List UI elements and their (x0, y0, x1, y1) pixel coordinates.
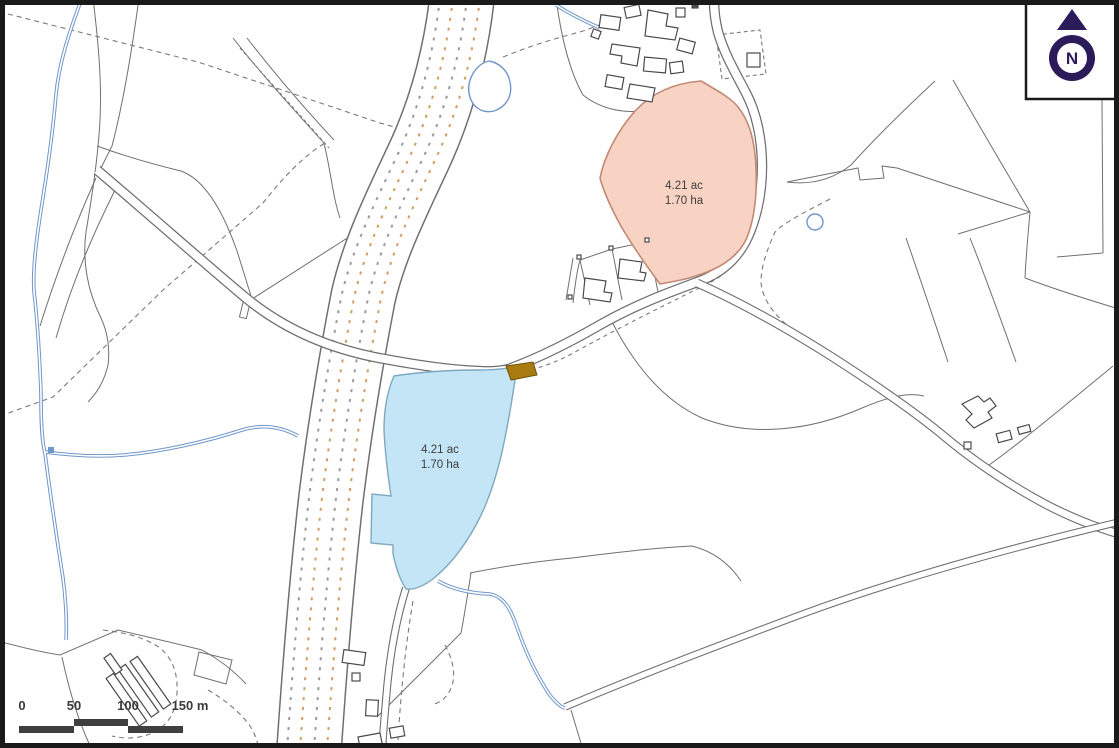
blue-parcel-area-ha: 1.70 ha (421, 459, 460, 471)
roads (97, 0, 1119, 748)
map-canvas: 4.21 ac 1.70 ha 4.21 ac 1.70 ha 0 50 100… (0, 0, 1119, 748)
pink-parcel-area-ac: 4.21 ac (665, 180, 703, 192)
field-boundaries (0, 0, 1119, 748)
buildings (104, 2, 1031, 748)
parcel-blue (371, 367, 515, 589)
pink-parcel-area-ha: 1.70 ha (665, 195, 704, 207)
north-arrow: N (1026, 2, 1117, 99)
blue-parcel-area-ac: 4.21 ac (421, 444, 459, 456)
pond-east (807, 214, 823, 230)
map-frame (3, 3, 1117, 746)
stream-west-branch (45, 427, 298, 456)
scale-label-150: 150 m (172, 698, 209, 713)
scale-label-100: 100 (117, 698, 139, 713)
scale-label-0: 0 (18, 698, 25, 713)
scale-bar: 0 50 100 150 m (18, 698, 208, 733)
scale-label-50: 50 (67, 698, 81, 713)
greenhouses (104, 654, 171, 727)
north-arrow-label: N (1066, 49, 1078, 68)
